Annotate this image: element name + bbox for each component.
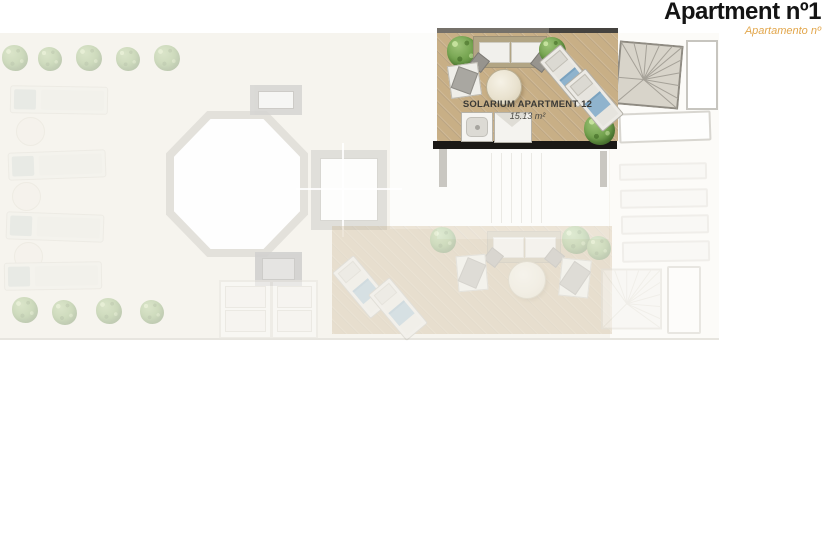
ghost-solarium [332,226,612,334]
balcony-bar [621,214,709,235]
page-subtitle: Apartamento nº [664,25,821,37]
sofa-icon [473,36,547,68]
armchair-icon [447,62,482,99]
flat-lounger-icon [4,261,102,291]
balcony-bar [667,266,701,334]
plant-icon [52,300,77,325]
solarium-unit[interactable]: SOLARIUM APARTMENT 12 15.13 m² [437,28,618,150]
landing-rail [686,40,718,110]
door-panel-icon [271,280,318,339]
wall-stub [439,149,447,187]
unit-label-block: SOLARIUM APARTMENT 12 15.13 m² [437,99,618,121]
plant-icon [12,297,38,323]
door-panel-icon [219,280,272,339]
flat-lounger-icon [8,149,107,180]
round-table-icon [16,117,45,146]
plant-icon [116,47,140,71]
page: Apartment nº1 Apartamento nº [0,0,825,540]
page-title: Apartment nº1 [664,0,821,24]
landing-bar [619,110,712,143]
stair-steps [482,153,542,223]
staircase-icon [614,40,683,109]
plant-icon [2,45,28,71]
balcony-bar [622,240,710,263]
round-table-icon [508,261,546,299]
plant-icon [154,45,180,71]
wall-stub [600,151,607,187]
plant-icon [38,47,62,71]
skylight-icon [250,85,302,115]
unit-area: 15.13 m² [437,111,618,121]
plant-icon [96,298,122,324]
header: Apartment nº1 Apartamento nº [664,0,821,37]
balcony-bar [619,162,707,181]
unit-name: SOLARIUM APARTMENT 12 [437,99,618,110]
plant-icon [140,300,164,324]
armchair-icon [455,254,488,292]
plant-icon [587,236,611,260]
grid-line [342,143,344,237]
staircase-icon [601,266,662,332]
grid-line [296,188,402,190]
skylight-icon [311,150,387,230]
plant-icon [430,227,456,253]
octagon-skylight-icon [166,111,308,257]
balcony-bar [620,188,708,209]
flat-lounger-icon [6,211,105,242]
plant-icon [562,226,590,254]
round-table-icon [12,182,41,211]
floor-plan: SOLARIUM APARTMENT 12 15.13 m² [0,33,719,340]
plant-icon [76,45,102,71]
octagon-skylight-glass [174,119,300,249]
flat-lounger-icon [10,85,108,115]
sofa-icon [487,231,561,263]
armchair-icon [558,258,592,299]
